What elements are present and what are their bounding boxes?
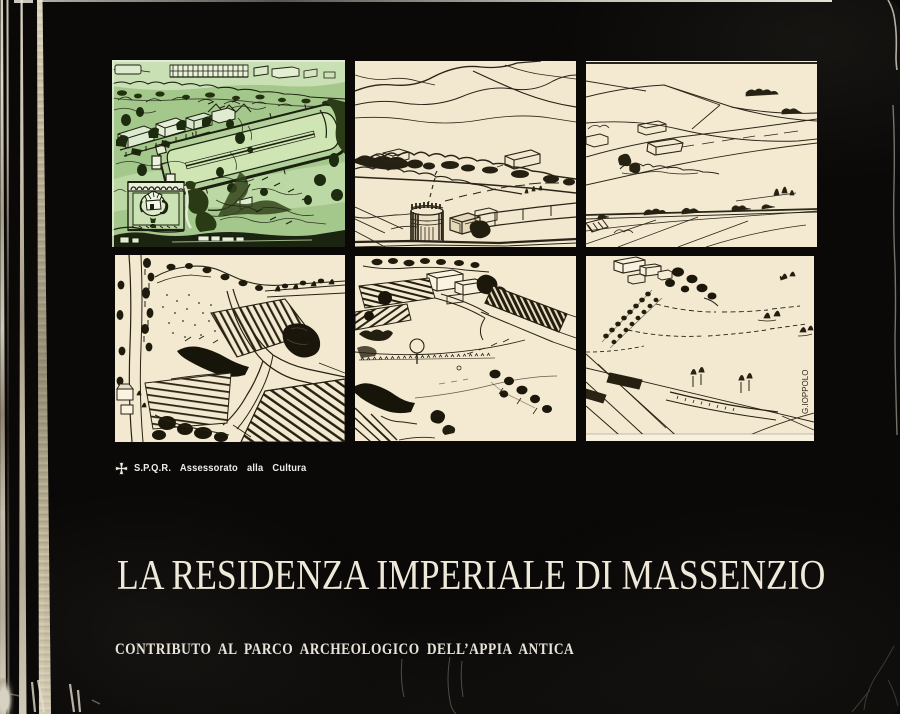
svg-text:G.IOPPOLO: G.IOPPOLO	[801, 370, 810, 414]
